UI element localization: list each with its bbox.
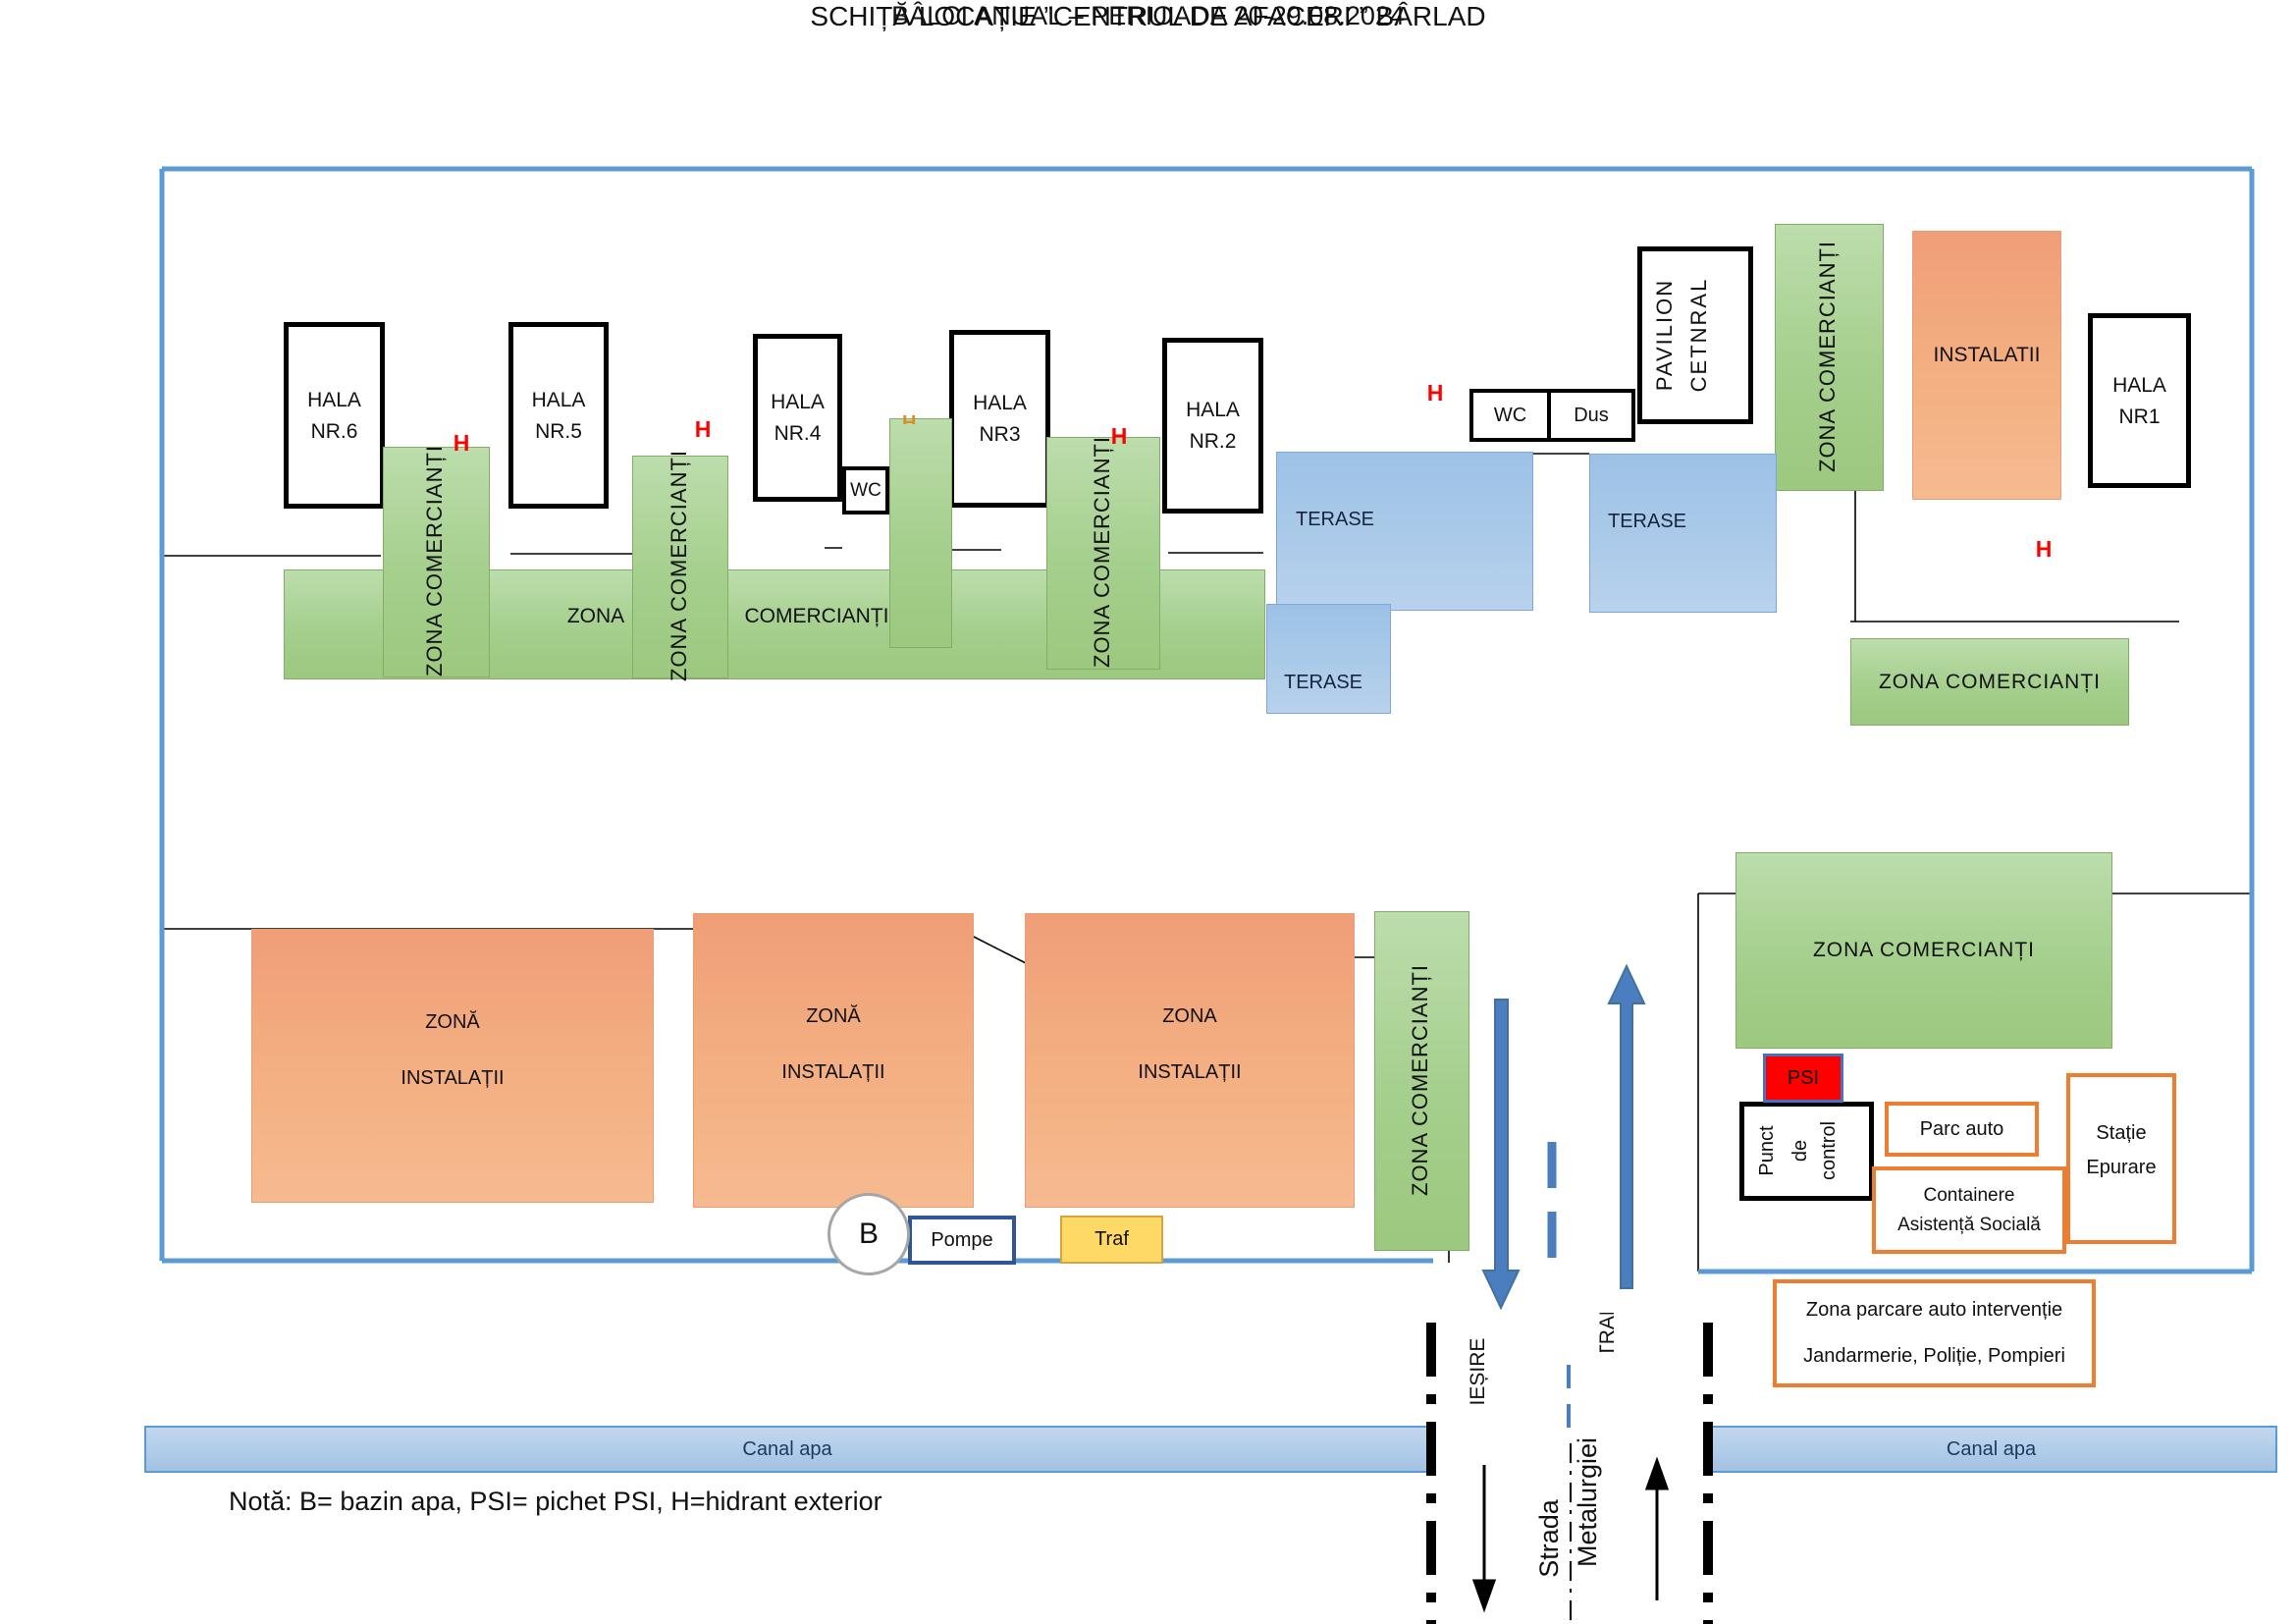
site-plan: SCHIȚĂ LOCAȚIE ”CENTRUL DE AFACERI ” BÂR… xyxy=(0,0,2296,1624)
hydrant-marker-1: H xyxy=(442,430,481,457)
traf-box: Traf xyxy=(1060,1216,1163,1264)
hydrant-marker-2: H xyxy=(683,416,722,443)
hydrant-marker-5: H xyxy=(2024,536,2063,563)
hydrant-marker-partial: H xyxy=(900,415,920,424)
hydrant-marker-4: H xyxy=(1415,380,1455,406)
bazin-apa-circle: B xyxy=(828,1193,910,1275)
arrow-down-small-head xyxy=(1474,1581,1494,1608)
hydrant-marker-partial-glyph: H xyxy=(902,415,916,424)
arrow-down-big xyxy=(1483,1000,1519,1308)
pompe-box: Pompe xyxy=(908,1216,1016,1265)
border-and-road-layer xyxy=(0,0,2296,1624)
big-road-arrows xyxy=(1483,966,1644,1308)
arrow-up-big xyxy=(1609,966,1644,1288)
arrow-up-small-head xyxy=(1647,1461,1667,1489)
site-border xyxy=(162,169,2252,1272)
road-center-dashes xyxy=(1552,1142,1569,1434)
hydrant-marker-3: H xyxy=(1099,423,1139,450)
